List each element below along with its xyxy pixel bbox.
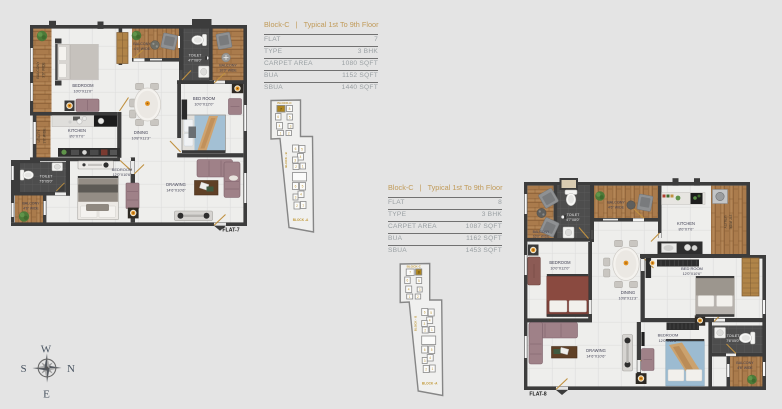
svg-text:BEDROOM: BEDROOM [658,333,679,338]
svg-text:2: 2 [296,204,298,208]
svg-text:10'0" WIDE: 10'0" WIDE [533,235,549,239]
svg-text:DRAWING: DRAWING [586,348,606,353]
svg-text:8'0"X7'0": 8'0"X7'0" [678,227,694,231]
svg-text:10'0"X12'0": 10'0"X12'0" [550,266,570,270]
svg-text:2: 2 [417,295,419,299]
svg-text:N: N [67,363,75,375]
svg-text:BALCONY: BALCONY [22,202,40,206]
svg-text:12'0"X10'6": 12'0"X10'6" [113,173,132,177]
svg-text:7: 7 [409,271,411,275]
svg-text:3: 3 [290,124,292,128]
svg-text:4: 4 [429,319,431,323]
svg-text:4: 4 [429,356,431,360]
svg-text:4'6" WIDE: 4'6" WIDE [134,47,151,51]
svg-text:BALCONY: BALCONY [533,230,550,234]
svg-text:1: 1 [280,131,282,135]
svg-text:1: 1 [431,328,433,332]
svg-text:12'0"X10'6": 12'0"X10'6" [683,272,702,276]
svg-text:2: 2 [288,131,290,135]
svg-text:TOILET: TOILET [727,334,741,338]
svg-text:4'6" WIDE: 4'6" WIDE [23,206,39,210]
svg-text:12'0"X10'6": 12'0"X10'6" [659,339,678,343]
svg-text:4: 4 [279,124,281,128]
svg-text:DINING: DINING [621,290,635,295]
svg-text:4: 4 [300,193,302,197]
svg-text:BALCONY: BALCONY [219,64,237,68]
svg-text:BEDROOM: BEDROOM [549,260,571,265]
svg-text:FLAT-8: FLAT-8 [529,392,546,398]
svg-text:7'6"X5'0": 7'6"X5'0" [39,180,53,184]
svg-text:3: 3 [419,288,421,292]
svg-text:BALCONY: BALCONY [36,61,40,79]
svg-text:4'7"X8'0": 4'7"X8'0" [188,59,202,63]
svg-text:4: 4 [408,288,410,292]
svg-text:BED ROOM: BED ROOM [193,96,216,101]
svg-text:2: 2 [425,367,427,371]
svg-text:5: 5 [289,115,291,119]
svg-text:BLOCK -A: BLOCK -A [422,381,438,385]
svg-text:6: 6 [277,115,279,119]
svg-text:5: 5 [301,147,303,151]
svg-text:7: 7 [280,107,282,111]
svg-text:BALCONY: BALCONY [736,361,754,365]
svg-text:BEDROOM: BEDROOM [112,167,133,172]
svg-text:1: 1 [409,295,411,299]
svg-text:3: 3 [294,158,296,162]
svg-text:6: 6 [407,279,409,283]
svg-text:1: 1 [432,367,434,371]
svg-text:BLOCK-C: BLOCK-C [407,265,422,269]
svg-text:TOILET: TOILET [40,175,54,179]
svg-text:E: E [43,389,50,401]
svg-text:6: 6 [424,348,426,352]
svg-text:1: 1 [302,164,304,168]
svg-text:FLAT-7: FLAT-7 [222,228,239,234]
svg-text:5: 5 [430,311,432,315]
svg-text:5: 5 [302,185,304,189]
svg-text:BALCONY: BALCONY [133,42,151,46]
svg-text:DRAWING: DRAWING [166,182,186,187]
svg-text:3: 3 [424,322,426,326]
svg-text:10'0" WIDE: 10'0" WIDE [219,68,237,72]
svg-text:1: 1 [302,203,304,207]
svg-text:6: 6 [295,184,297,188]
svg-text:4'6" WIDE: 4'6" WIDE [608,205,625,209]
svg-text:4'7"X8'0": 4'7"X8'0" [566,218,580,222]
svg-text:BED ROOM: BED ROOM [681,266,703,271]
svg-text:4'6" WIDE: 4'6" WIDE [737,366,753,370]
svg-text:S: S [20,363,26,375]
svg-text:5: 5 [431,348,433,352]
svg-text:KITCHEN: KITCHEN [677,221,695,226]
svg-text:8: 8 [418,271,420,275]
svg-text:TOILET: TOILET [189,54,203,58]
svg-text:10'0"X11'0": 10'0"X11'0" [73,89,93,93]
svg-text:3'6" WIDE: 3'6" WIDE [729,215,733,231]
svg-text:8'0"X7'0": 8'0"X7'0" [69,134,85,138]
svg-text:UTILITY: UTILITY [723,215,727,229]
svg-text:BLOCK - B: BLOCK - B [413,315,417,331]
svg-text:5: 5 [418,279,420,283]
svg-text:TOILET: TOILET [567,213,581,217]
svg-text:10'0"X12'0": 10'0"X12'0" [194,102,214,106]
svg-text:14'6"X10'6": 14'6"X10'6" [166,188,186,192]
svg-text:3'6" WIDE: 3'6" WIDE [42,62,46,78]
svg-text:W: W [41,344,52,356]
svg-text:14'6"X10'6": 14'6"X10'6" [586,354,606,358]
svg-text:3: 3 [295,195,297,199]
svg-text:BLOCK - B: BLOCK - B [284,151,288,167]
svg-text:KITCHEN: KITCHEN [68,128,86,133]
svg-text:3: 3 [424,359,426,363]
svg-text:10'8"X11'3": 10'8"X11'3" [618,296,638,300]
svg-text:BLOCK-C: BLOCK-C [277,101,292,105]
svg-text:BEDROOM: BEDROOM [72,83,94,88]
svg-text:2: 2 [424,328,426,332]
svg-text:3'6" WIDE: 3'6" WIDE [43,128,47,144]
svg-text:BLOCK -A: BLOCK -A [293,218,309,222]
svg-text:UTILITY: UTILITY [37,129,41,143]
svg-text:6: 6 [424,310,426,314]
svg-text:DINING: DINING [134,130,148,135]
svg-text:BALCONY: BALCONY [607,201,625,205]
svg-text:8: 8 [289,107,291,111]
svg-text:7'6"X5'0": 7'6"X5'0" [726,339,740,343]
svg-text:2: 2 [295,165,297,169]
svg-text:4: 4 [300,155,302,159]
svg-text:10'8"X11'3": 10'8"X11'3" [131,136,151,140]
svg-text:6: 6 [295,147,297,151]
